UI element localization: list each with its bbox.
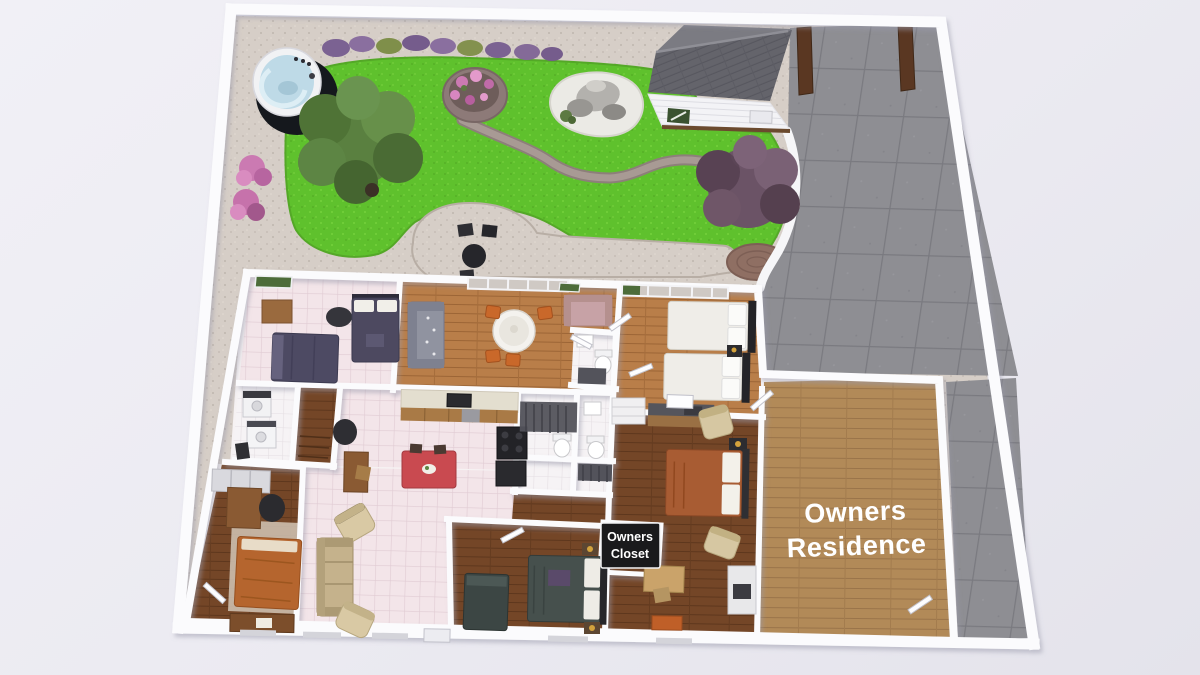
bed [352,294,399,362]
garden-shed [648,25,792,131]
kitchen-sink [447,394,471,408]
rock-feature [550,72,643,136]
chair [537,306,553,320]
dresser-white [612,398,645,424]
chair [434,445,447,455]
entry-door [424,629,450,643]
kitchen-counter [401,389,519,423]
bed [527,553,607,624]
sofa-gray [408,302,444,368]
entry-hall-floor [512,493,608,524]
office-chair [333,419,357,445]
kitchenette-side [728,566,756,614]
lamp [589,625,595,631]
bed [665,447,749,518]
folded-blanket [366,334,384,347]
lamp [732,348,737,353]
owners-residence-label-line2: Residence [786,529,927,564]
door-panel [667,395,693,409]
sofa-pink [564,295,612,326]
bed [271,333,339,383]
ottoman [326,307,352,327]
vacuum [235,442,250,460]
dryer [247,421,276,448]
shed-vent [750,111,772,124]
lamp [735,441,741,447]
bedroom-c-window [622,285,728,299]
gate-left [797,27,813,95]
chair [506,354,521,367]
folded-blanket [548,570,570,586]
office-chair [259,494,285,522]
lamp [587,546,593,552]
sink [584,402,601,415]
washer [243,391,271,417]
bed [668,299,757,353]
dresser [262,300,292,323]
stove [497,427,527,459]
toilet [588,442,604,459]
chair [355,465,371,481]
lower-cabinet [496,461,526,486]
chair [485,349,500,362]
chair [653,587,671,604]
flower-bed-planter [443,68,507,122]
desk [226,487,261,528]
shower-curtain [578,368,607,385]
daybed [463,573,509,631]
bed [234,536,302,609]
owners-closet-label-line1: Owners [607,530,653,544]
window-green-1 [255,276,292,288]
sink [733,584,751,599]
paper [256,618,272,628]
window-green-2 [559,283,580,292]
scene-canvas: Owners Closet Owners Residence [0,0,1200,675]
owners-closet-label-line2: Closet [611,547,650,561]
toilet [554,439,570,457]
owners-residence-label-line1: Owners [804,495,907,529]
owners-closet-label: Owners Closet [601,523,660,568]
chair [485,305,501,319]
chair [410,444,423,454]
floor-plan-render: Owners Closet Owners Residence [0,0,1200,675]
gate-right [898,23,915,91]
shower-curtain [520,402,578,433]
low-table-orange [652,616,682,631]
dining-window [468,278,568,292]
